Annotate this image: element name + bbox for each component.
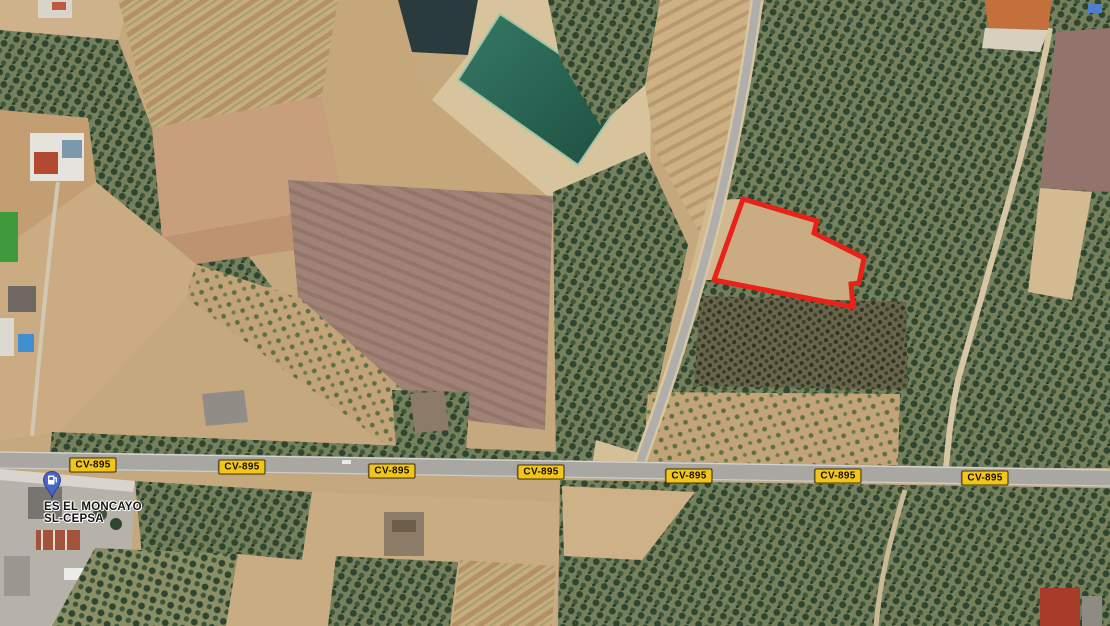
building — [410, 391, 449, 433]
building — [985, 0, 1052, 30]
road-badge: CV-895 — [368, 464, 415, 479]
car — [1088, 4, 1102, 13]
gas-station-label[interactable]: ES EL MONCAYO SL-CEPSA — [44, 502, 174, 525]
road-badge: CV-895 — [69, 458, 116, 473]
road-badge: CV-895 — [665, 469, 712, 484]
building — [202, 390, 248, 426]
building — [1040, 588, 1080, 626]
map-canvas[interactable] — [0, 0, 1110, 626]
car — [342, 460, 351, 464]
road-badge: CV-895 — [517, 465, 564, 480]
satellite-map[interactable]: CV-895 CV-895 CV-895 CV-895 CV-895 CV-89… — [0, 0, 1110, 626]
swimming-pool — [18, 334, 34, 352]
building — [8, 286, 36, 312]
gas-station-pin[interactable] — [41, 470, 63, 500]
gas-station-name-line1: ES EL MONCAYO — [44, 502, 174, 514]
road-badge: CV-895 — [218, 460, 265, 475]
greenhouse — [0, 212, 18, 262]
road-badge: CV-895 — [814, 469, 861, 484]
road-badge: CV-895 — [961, 471, 1008, 486]
building — [384, 512, 424, 556]
gas-station-name-line2: SL-CEPSA — [44, 514, 174, 526]
